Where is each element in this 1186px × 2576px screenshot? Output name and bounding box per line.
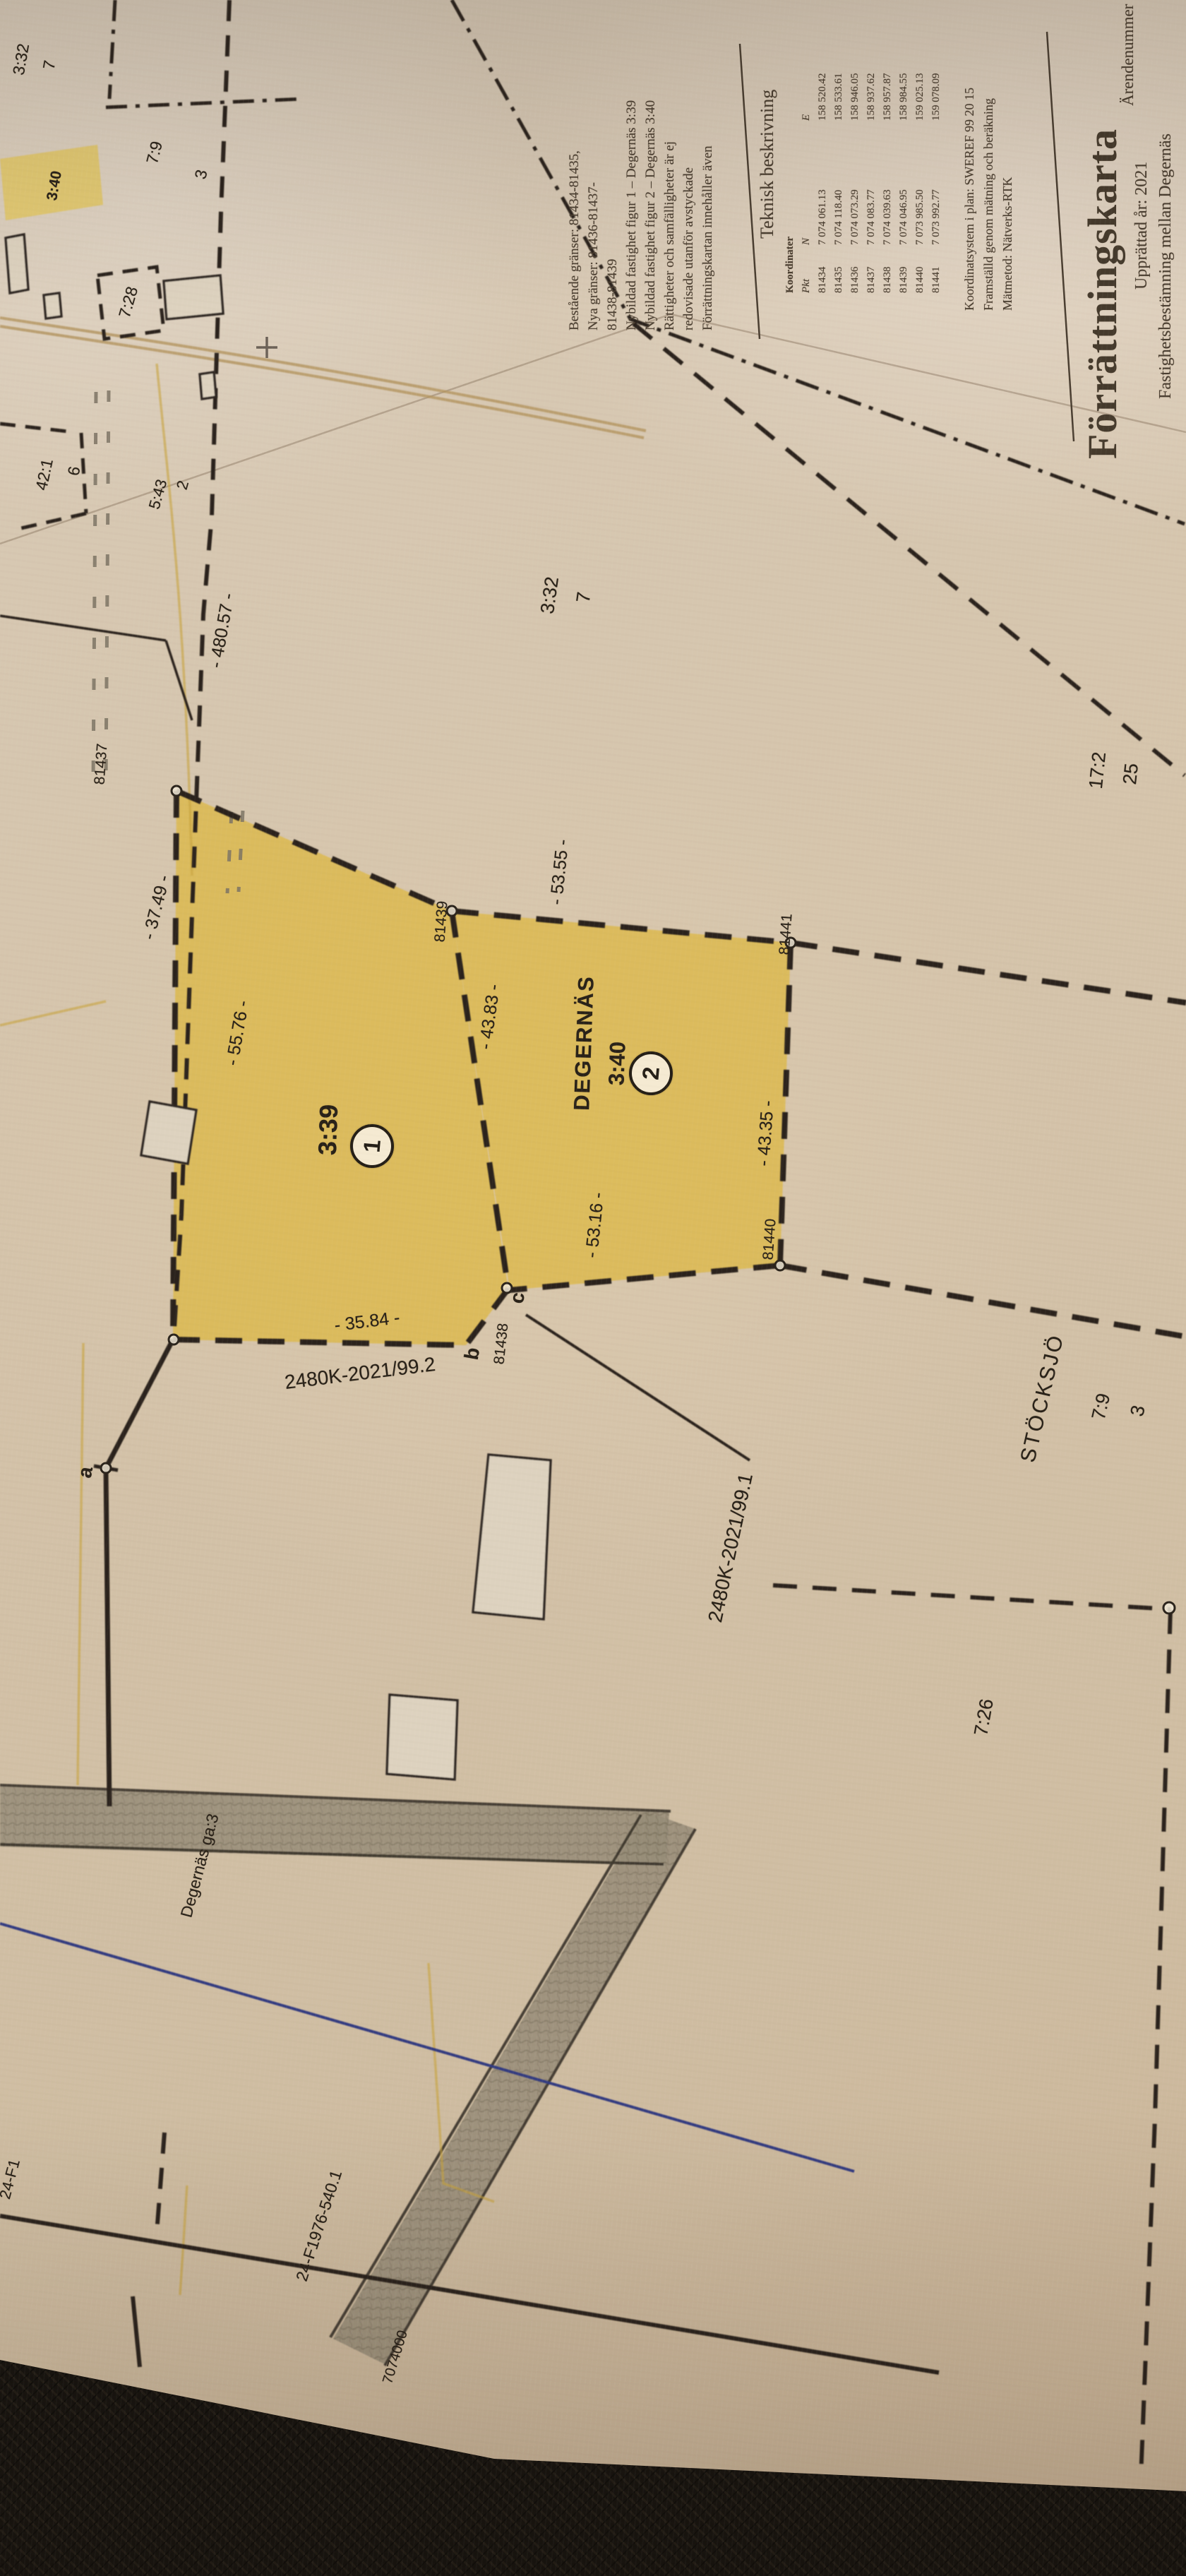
coord-cell: 81440 <box>912 245 928 293</box>
grid-northing: 7074000 <box>381 2329 410 2385</box>
description-text-block: Bestående gränser: 81434-81435,Nya gräns… <box>565 0 731 330</box>
coord-cell: 7 074 039.63 <box>880 121 896 245</box>
inset-7-9: 7:9 <box>144 140 165 166</box>
coord-cell: 81441 <box>928 245 945 293</box>
coord-row: 814347 074 061.13158 520.42 <box>815 0 831 293</box>
description-line: Förrättningskartan innehåller även <box>698 0 717 330</box>
coord-cell: 81437 <box>863 245 880 293</box>
survey-meta-line: Mätmetod: Nätverks-RTK <box>998 0 1017 311</box>
forrattningskarta-photo: 81437- 37.49 -- 55.76 -3:3981439- 43.83 … <box>0 0 1186 2576</box>
coord-cell: 81434 <box>815 245 831 293</box>
coord-cell: 7 073 992.77 <box>928 121 945 245</box>
coord-cell: 158 984.55 <box>896 29 912 121</box>
arendenummer-label: Ärendenummer <box>1119 0 1143 106</box>
coord-row: 814387 074 039.63158 957.87 <box>880 0 896 293</box>
parcel-7-9: 7:9 <box>1089 1392 1114 1422</box>
length-53-16: - 53.16 - <box>583 1191 608 1258</box>
coord-col-header: Pkt <box>798 245 815 293</box>
coord-col-header: N <box>798 121 815 245</box>
point-81441-label: 81441 <box>777 913 794 955</box>
parcel-3-40: 3:40 <box>605 1041 628 1085</box>
inset-42-1-unit: 6 <box>65 465 83 477</box>
coord-cell: 158 957.87 <box>880 29 896 121</box>
description-line: redovisade utanför avstyckade <box>679 0 698 330</box>
inset-7-28: 7:28 <box>116 285 140 319</box>
parcel-3-32-unit: 7 <box>574 591 594 604</box>
length-480-57: - 480.57 - <box>207 592 237 669</box>
length-43-83: - 43.83 - <box>477 983 503 1051</box>
act-24-f-edge-fragment: 24-F1 <box>0 2157 23 2200</box>
length-35-84: - 35.84 - <box>333 1309 400 1335</box>
coordinate-table-rows: 814347 074 061.13158 520.42814357 074 11… <box>815 0 945 293</box>
coord-cell: 81438 <box>880 245 896 293</box>
parcel-3-39: 3:39 <box>315 1104 342 1155</box>
description-line: Bestående gränser: 81434-81435, <box>565 0 584 330</box>
parcel-3-32: 3:32 <box>538 576 562 615</box>
coord-cell: 81439 <box>896 245 912 293</box>
coord-cell: 159 078.09 <box>928 29 945 121</box>
figure-1-marker-number: 1 <box>358 1138 385 1154</box>
figure-1-marker: 1 <box>350 1124 394 1168</box>
inset-3-32-unit: 7 <box>41 59 59 71</box>
koordinater-heading: Koordinater <box>782 0 798 293</box>
point-a-label: a <box>75 1465 96 1479</box>
coord-row: 814367 074 073.29158 946.05 <box>847 0 863 293</box>
point-c-label: c <box>507 1291 528 1305</box>
coord-cell: 7 074 083.77 <box>863 121 880 245</box>
coord-row: 814377 074 083.77158 937.62 <box>863 0 880 293</box>
description-line: 81438-81439 <box>603 0 622 330</box>
road-degernas-ga3: Degernäs ga:3 <box>178 1812 221 1919</box>
description-line: Nybildad fastighet figur 1 – Degernäs 3:… <box>622 0 641 330</box>
length-43-35: - 43.35 - <box>755 1100 777 1167</box>
inset-3-32: 3:32 <box>11 42 32 76</box>
coord-row: 814357 074 118.40158 533.61 <box>831 0 847 293</box>
teknisk-beskrivning-heading: Teknisk beskrivning <box>757 48 782 239</box>
inset-5-43: 5:43 <box>147 477 170 511</box>
coordinate-table-header: PktNE <box>798 0 815 293</box>
coord-cell: 159 025.13 <box>912 29 928 121</box>
parcel-17-2-unit: 25 <box>1120 763 1142 786</box>
parcel-17-2: 17:2 <box>1086 751 1109 789</box>
upprattad-year-label: Upprättad år: 2021 <box>1132 99 1158 290</box>
name-degernas: DEGERNÄS <box>570 975 597 1111</box>
survey-meta-line: Framställd genom mätning och beräkning <box>979 0 998 311</box>
survey-meta-line: Koordinatsystem i plan: SWEREF 99 20 15 <box>960 0 979 311</box>
point-b-label: b <box>462 1346 484 1361</box>
parcel-7-9-unit: 3 <box>1127 1404 1149 1419</box>
length-37-49: - 37.49 - <box>140 873 174 941</box>
act-2480k-99-2: 2480K-2021/99.2 <box>284 1354 437 1393</box>
inset-7-9-unit: 3 <box>192 168 210 181</box>
figure-2-marker: 2 <box>629 1051 673 1095</box>
length-55-76: - 55.76 - <box>224 999 253 1067</box>
coord-cell: 7 074 046.95 <box>896 121 912 245</box>
description-line: Nybildad fastighet figur 2 – Degernäs 3:… <box>641 0 660 330</box>
description-line: Nya gränser: 81436-81437- <box>584 0 603 330</box>
inset-5-43-unit: 2 <box>174 479 192 491</box>
coord-cell: 7 074 073.29 <box>847 121 863 245</box>
figure-2-marker-number: 2 <box>637 1066 664 1081</box>
coordinate-table: Koordinater PktNE 814347 074 061.13158 5… <box>782 0 960 293</box>
coord-cell: 7 073 985.50 <box>912 121 928 245</box>
coord-cell: 158 946.05 <box>847 29 863 121</box>
coord-cell: 81435 <box>831 245 847 293</box>
point-81440-label: 81440 <box>760 1218 778 1260</box>
act-24-f1976-540-1: 24-F1976-540.1 <box>294 2169 345 2284</box>
point-81438-label: 81438 <box>492 1323 511 1365</box>
coord-row: 814417 073 992.77159 078.09 <box>928 0 945 293</box>
map-labels-layer: 81437- 37.49 -- 55.76 -3:3981439- 43.83 … <box>0 0 1186 2576</box>
description-line: Rättigheter och samfälligheter är ej <box>660 0 679 330</box>
parcel-7-26: 7:26 <box>971 1698 997 1737</box>
act-2480k-99-1: 2480K-2021/99.1 <box>705 1472 756 1624</box>
point-81439-label: 81439 <box>432 900 450 943</box>
coord-row: 814397 074 046.95158 984.55 <box>896 0 912 293</box>
coord-cell: 158 520.42 <box>815 29 831 121</box>
survey-meta-block: Koordinatsystem i plan: SWEREF 99 20 15F… <box>960 0 1025 311</box>
coord-row: 814407 073 985.50159 025.13 <box>912 0 928 293</box>
inset-3-40: 3:40 <box>44 169 64 201</box>
coord-cell: 81436 <box>847 245 863 293</box>
coord-cell: 158 533.61 <box>831 29 847 121</box>
coord-cell: 7 074 118.40 <box>831 121 847 245</box>
name-stocksjo: STÖCKSJÖ <box>1017 1332 1067 1465</box>
point-81437-label: 81437 <box>92 743 109 785</box>
inset-42-1: 42:1 <box>33 458 56 492</box>
map-subtitle: Fastighetsbestämning mellan Degernäs <box>1156 18 1183 399</box>
coord-cell: 7 074 061.13 <box>815 121 831 245</box>
coord-cell: 158 937.62 <box>863 29 880 121</box>
coord-col-header: E <box>798 29 815 121</box>
length-53-55: - 53.55 - <box>548 838 573 905</box>
